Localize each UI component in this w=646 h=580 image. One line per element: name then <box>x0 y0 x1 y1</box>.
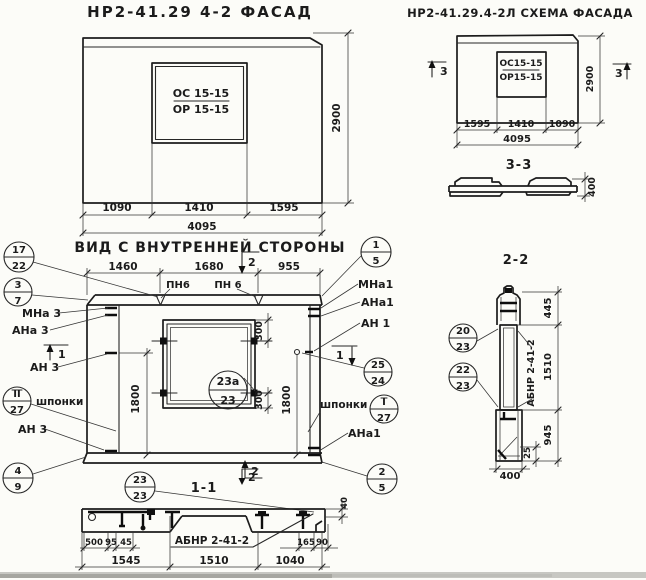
marker-bottom: 23 <box>456 342 470 353</box>
inner-dim-lines <box>87 268 320 455</box>
section-2-2-dim-25: 25 <box>523 447 533 459</box>
facade-dim-height: 2900 <box>331 103 343 132</box>
facade-title: НР2-41.29 4-2 ФАСАД <box>87 3 313 21</box>
marker-bottom: 5 <box>379 483 386 494</box>
section-2-2-panel-inner <box>504 328 515 407</box>
marker-top: 4 <box>15 466 22 477</box>
inner-label-an1: АН 1 <box>361 317 390 330</box>
facade-dim-mid: 1410 <box>184 202 213 214</box>
marker-II-27: II 27 <box>3 387 31 416</box>
hinge-tab-icon <box>160 390 167 397</box>
anchor-head-icon <box>258 511 266 516</box>
inner-label-an3: АН 3 <box>30 361 59 374</box>
scheme-title: НР2-41.29.4-2Л СХЕМА ФАСАДА <box>407 6 633 20</box>
facade-dim-left: 1090 <box>102 202 131 214</box>
section-1-1-dim-500: 500 <box>85 538 103 548</box>
marker-bottom: 27 <box>10 405 24 416</box>
section-flag-number: 1 <box>336 349 344 362</box>
scheme-dim-mid: 1410 <box>508 119 535 130</box>
inner-label-shponki-right: шпонки <box>320 399 367 411</box>
section-2-2-top-anchor-inner <box>501 297 516 321</box>
section-1-1-loop-anchor <box>89 514 96 521</box>
arrow-up-icon <box>242 460 249 468</box>
section-1-1-label: АБНР 2-41-2 <box>175 535 249 547</box>
section-2-2-label-vertical: АБНР 2-41-2 <box>526 339 537 406</box>
scheme-section-flag-right: 3 <box>613 62 631 80</box>
inner-dim-right-v: 1800 <box>281 385 293 414</box>
scheme-drawing: НР2-41.29.4-2Л СХЕМА ФАСАДА ОС15-15 ОР15… <box>407 6 633 148</box>
section-1-1-dim-45: 45 <box>120 538 132 548</box>
marker-top: II <box>13 389 20 400</box>
marker-top: 17 <box>12 245 26 256</box>
marker-bottom: 9 <box>15 482 22 493</box>
marker-bottom: 7 <box>15 296 22 307</box>
marker-17-22: 17 22 <box>4 242 34 272</box>
drawing-sheet: НР2-41.29 4-2 ФАСАД ОС 15-15 ОР 15-15 10… <box>0 0 646 580</box>
section-1-1-dim-90: 90 <box>316 538 328 548</box>
section-1-1-title: 1-1 <box>191 481 218 496</box>
scan-strip-light <box>332 574 552 577</box>
inner-label-ana1: АНа1 <box>361 296 394 309</box>
arrow-up-icon <box>624 62 631 70</box>
blueprint-svg: НР2-41.29 4-2 ФАСАД ОС 15-15 ОР 15-15 10… <box>0 0 646 580</box>
inner-view-drawing: ВИД С ВНУТРЕННЕЙ СТОРОНЫ 1460 1680 955 1… <box>12 239 394 512</box>
scheme-window-mark-top: ОС15-15 <box>499 59 542 69</box>
section-flag-number: 2 <box>248 471 256 484</box>
section-2-2-title: 2-2 <box>503 253 530 268</box>
section-flag-number: 1 <box>58 348 66 361</box>
section-flag-number: 3 <box>615 67 623 80</box>
anchor-head-icon <box>141 526 146 531</box>
marker-22-23: 22 23 <box>449 363 477 392</box>
section-1-1-rebar-marks <box>88 512 310 529</box>
section-2-2-dim-1510: 1510 <box>543 353 554 381</box>
arrow-down-icon <box>239 478 246 485</box>
section-1-1-dim-95: 95 <box>105 538 117 548</box>
marker-bottom: 23 <box>220 394 235 407</box>
scheme-dim-total: 4095 <box>503 134 531 145</box>
marker-top: 1 <box>373 240 380 251</box>
section-3-3-title: 3-3 <box>506 158 533 173</box>
anchor-head-icon <box>147 509 155 515</box>
inner-dim-top-mid: 1680 <box>194 261 223 273</box>
marker-bottom: 22 <box>12 261 26 272</box>
section-3-3-drawing: 3-3 400 <box>449 158 598 202</box>
anchor-head-icon <box>505 288 512 293</box>
scheme-section-flag-left: 3 <box>428 60 448 78</box>
section-1-1-dim-40: 40 <box>340 497 350 509</box>
marker-top: 23а <box>217 375 240 388</box>
section-2-2-panel-body <box>500 325 517 410</box>
facade-dim-right: 1595 <box>269 202 298 214</box>
section-1-1-dim-1545: 1545 <box>111 555 140 567</box>
inner-dim-top-left: 1460 <box>108 261 137 273</box>
facade-window-mark-bottom: ОР 15-15 <box>173 103 229 116</box>
marker-25-24: 25 24 <box>364 358 392 387</box>
inner-label-ana1-bottom: АНа1 <box>348 427 381 440</box>
scheme-dim-right: 1090 <box>549 119 576 130</box>
arrow-up-icon <box>429 60 436 68</box>
marker-top: 2 <box>379 467 386 478</box>
scheme-dim-left: 1595 <box>464 119 490 130</box>
marker-bottom: 23 <box>456 381 470 392</box>
marker-bottom: 27 <box>377 413 391 424</box>
anchor-head-icon <box>299 511 307 516</box>
inner-label-ana3: АНа 3 <box>12 324 49 337</box>
inner-anchor-marks <box>105 308 320 455</box>
inner-label-shponki-left: шпонки <box>36 396 83 408</box>
marker-top: 25 <box>371 360 385 371</box>
marker-top: I <box>382 397 386 408</box>
marker-23-23: 23 23 <box>125 472 155 502</box>
marker-1-5: 1 5 <box>361 237 391 267</box>
section-2-2-drawing: 2-2 445 1510 945 25 400 АБНР 2-41-2 <box>477 253 562 482</box>
inner-label-an3-bottom: АН 3 <box>18 423 47 436</box>
marker-3-7: 3 7 <box>4 278 32 307</box>
section-1-1-dim-1040: 1040 <box>275 555 304 567</box>
section-2-2-bottom-bars <box>498 412 516 459</box>
section-3-3-left-block <box>450 178 503 196</box>
marker-bottom: 5 <box>373 256 380 267</box>
marker-top: 23 <box>133 475 147 486</box>
section-flag-number: 2 <box>248 256 256 269</box>
inner-dim-left-v: 1800 <box>130 384 142 413</box>
section-2-2-dim-400: 400 <box>500 471 521 482</box>
scheme-dim-height: 2900 <box>585 65 596 92</box>
inner-view-title: ВИД С ВНУТРЕННЕЙ СТОРОНЫ <box>74 239 345 256</box>
inner-pn6-notches <box>156 295 263 304</box>
marker-2-5: 2 5 <box>367 464 397 494</box>
facade-window-mark-top: ОС 15-15 <box>173 87 229 100</box>
section-flag-number: 3 <box>440 65 448 78</box>
section-3-3-web <box>449 186 577 192</box>
marker-I-27: I 27 <box>370 395 398 424</box>
inner-dim-origin-dot <box>295 350 300 355</box>
section-1-1-dim-165: 165 <box>297 538 315 548</box>
marker-20-23: 20 23 <box>449 324 477 353</box>
marker-4-9: 4 9 <box>3 463 33 493</box>
section-2-2-top-anchor-bars <box>500 303 517 311</box>
hinge-tab-icon <box>160 338 167 345</box>
scan-edge-artifact <box>0 572 646 578</box>
section-3-3-dim: 400 <box>587 177 598 197</box>
marker-top: 22 <box>456 365 470 376</box>
inner-hinge-lines <box>152 341 272 393</box>
scan-strip-dark <box>0 574 332 578</box>
marker-top: 20 <box>456 326 470 337</box>
section-1-1-flag-2: 2 <box>239 469 259 485</box>
scheme-window-mark-bottom: ОР15-15 <box>499 73 542 83</box>
marker-23a-23: 23а 23 <box>209 371 247 409</box>
facade-drawing: НР2-41.29 4-2 ФАСАД ОС 15-15 ОР 15-15 10… <box>80 3 354 236</box>
facade-dim-total: 4095 <box>187 221 216 233</box>
inner-dim-top-right: 955 <box>278 261 300 273</box>
section-2-2-dim-945: 945 <box>543 425 554 446</box>
marker-bottom: 23 <box>133 491 147 502</box>
section-1-1-dim-1510: 1510 <box>199 555 228 567</box>
inner-section-flag-1-left: 1 <box>44 344 68 361</box>
inner-label-mna3: МНа 3 <box>22 307 61 320</box>
inner-dim-win-top: 300 <box>254 321 265 341</box>
section-2-2-dim-445: 445 <box>543 298 554 319</box>
marker-top: 3 <box>15 280 22 291</box>
inner-dim-ticks <box>84 270 323 458</box>
inner-dim-win-bottom: 300 <box>254 390 265 410</box>
section-2-2-leader-lines <box>477 329 532 407</box>
scheme-dim-ticks <box>454 33 603 148</box>
inner-label-mna1: МНа1 <box>358 278 393 291</box>
marker-bottom: 24 <box>371 376 385 387</box>
inner-window-opening <box>163 320 255 408</box>
